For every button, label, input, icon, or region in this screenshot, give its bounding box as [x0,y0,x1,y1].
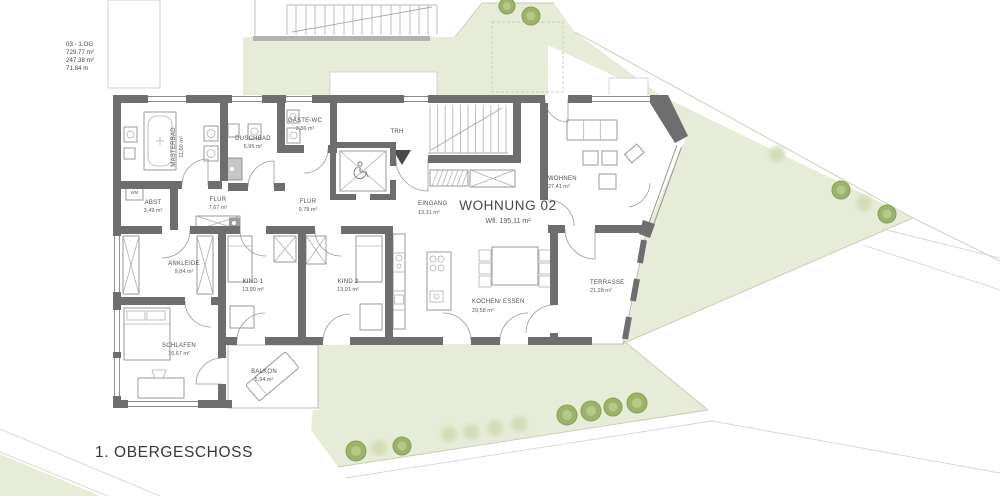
svg-text:27,41 m²: 27,41 m² [548,184,570,190]
svg-text:ANKLEIDE: ANKLEIDE [168,261,200,267]
apartment-area: Wfl. 195,11 m² [486,218,532,225]
elevator [340,151,386,191]
svg-text:EINGANG: EINGANG [418,201,448,207]
svg-text:29,58 m²: 29,58 m² [472,308,494,314]
info-block: 03 - 1.OG 729.77 m² 247.38 m² 71.84 m [66,41,94,72]
garden-corner [0,454,100,496]
neighbour-footprint [108,0,160,88]
svg-text:WOHNEN: WOHNEN [548,176,577,182]
svg-text:7,67 m²: 7,67 m² [209,205,228,211]
svg-text:3,36 m²: 3,36 m² [296,126,315,132]
stair-treads [287,5,437,35]
svg-text:3,49 m²: 3,49 m² [144,208,163,214]
svg-text:SCHLAFEN: SCHLAFEN [162,343,196,349]
room-label-trh: TRH [390,129,403,135]
svg-text:MASTERBAD: MASTERBAD [171,127,177,167]
svg-text:FLUR: FLUR [300,199,317,205]
garden-bottom-strip [311,341,708,467]
lower-roof-rect [330,72,437,96]
svg-text:KIND 2: KIND 2 [338,279,359,285]
svg-text:21,28 m²: 21,28 m² [590,288,612,294]
entry-platform [609,78,648,96]
svg-text:13,31 m²: 13,31 m² [418,210,440,216]
sheet-title: 1. OBERGESCHOSS [95,444,253,461]
svg-text:KIND 1: KIND 1 [243,279,264,285]
info-line: 247.38 m² [66,57,94,64]
svg-text:11,60 m²: 11,60 m² [179,136,185,157]
svg-text:13,99 m²: 13,99 m² [242,287,264,293]
svg-text:ABST: ABST [145,200,162,206]
info-line: 03 - 1.OG [66,41,93,48]
svg-text:DUSCHBAD: DUSCHBAD [235,136,271,142]
info-line: 71.84 m [66,65,88,72]
washing-machine-label: WM [131,190,139,195]
svg-text:5,94 m²: 5,94 m² [255,377,274,383]
retaining-wall [253,36,430,41]
svg-text:KOCHEN/ ESSEN: KOCHEN/ ESSEN [472,299,525,305]
floorplan-drawing: 03 - 1.OG 729.77 m² 247.38 m² 71.84 m MA… [0,0,1000,496]
svg-text:GÄSTE-WC: GÄSTE-WC [288,117,323,124]
svg-text:9,78 m²: 9,78 m² [299,207,318,213]
svg-text:FLUR: FLUR [210,197,227,203]
floorplan-sheet: 03 - 1.OG 729.77 m² 247.38 m² 71.84 m MA… [0,0,1000,496]
svg-text:9,84 m²: 9,84 m² [175,269,194,275]
svg-text:6,95 m²: 6,95 m² [244,144,263,150]
svg-text:TERRASSE: TERRASSE [590,280,624,286]
info-line: 729.77 m² [66,49,94,56]
svg-text:BALKON: BALKON [251,369,277,375]
apartment-name: WOHNUNG 02 [459,198,557,213]
svg-text:16,67 m²: 16,67 m² [168,351,190,357]
svg-text:13,91 m²: 13,91 m² [337,287,359,293]
